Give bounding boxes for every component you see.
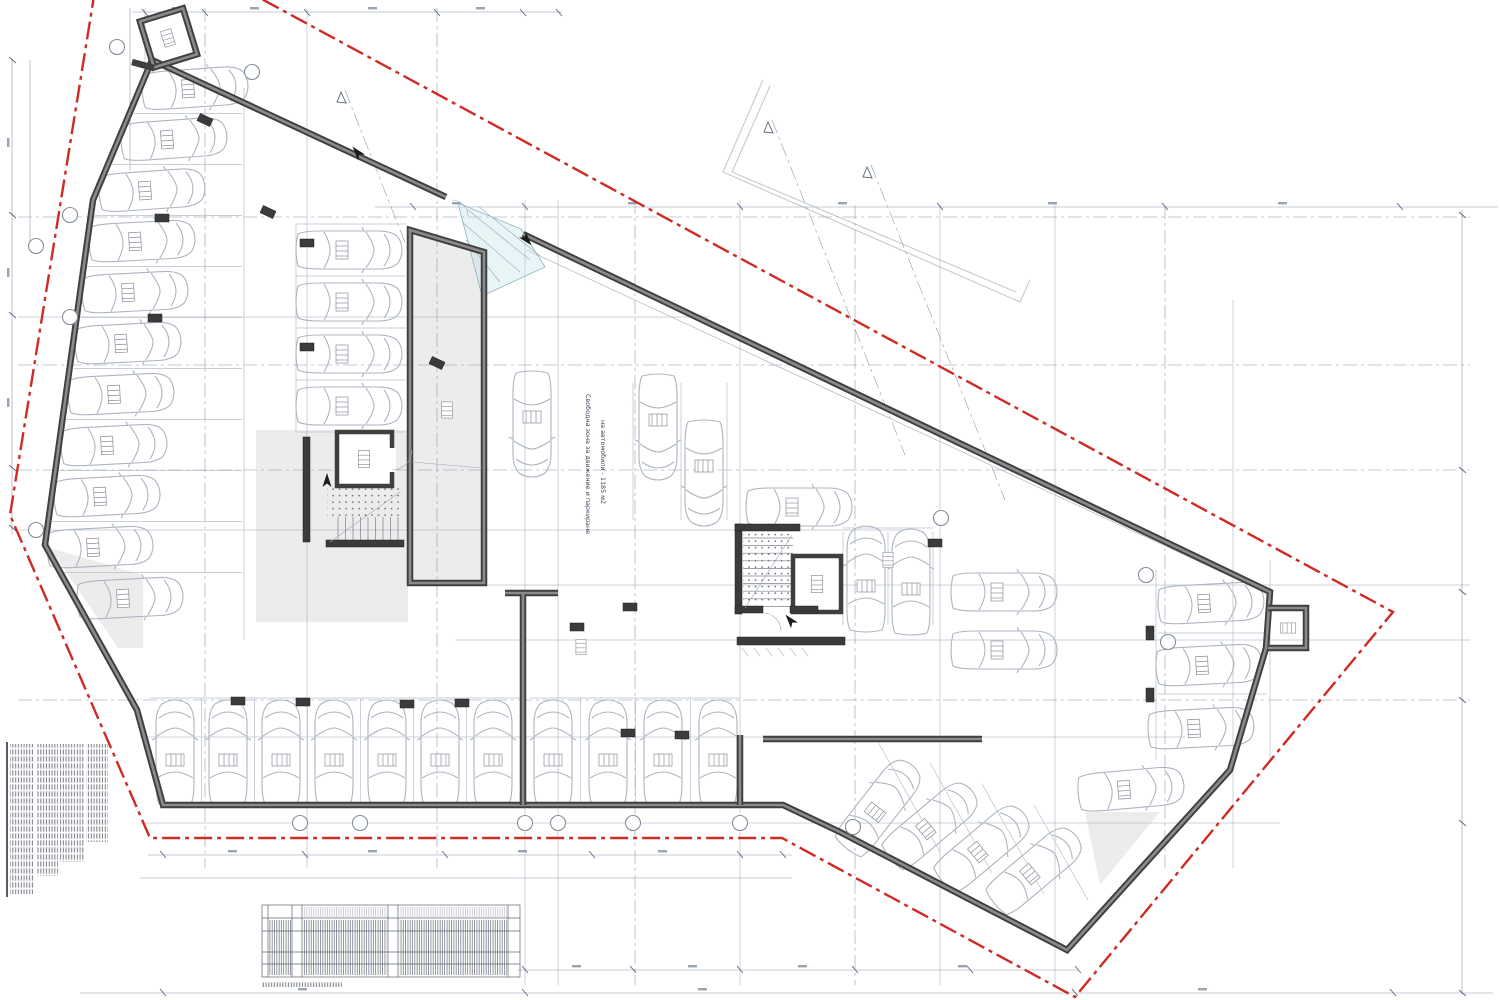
free-zone-label: Свободна зона за движение и паркиране на…: [584, 394, 607, 534]
stair-core-right: [735, 524, 841, 631]
top-left-room: [140, 8, 197, 67]
free-zone-label-line2: на автомобили - 1185 м2: [599, 420, 607, 504]
property-boundary: [10, 0, 1393, 997]
stair-hatch-left: [327, 487, 402, 517]
right-annex-room: [1268, 608, 1306, 648]
floor-plan-sheet: Свободна зона за движение и паркиране на…: [0, 0, 1500, 1000]
parking-floor-plan-drawing: Свободна зона за движение и паркиране на…: [0, 0, 1500, 1000]
parked-cars: [46, 61, 1265, 921]
schedule-table: [262, 905, 520, 987]
shaded-zones: [50, 230, 1160, 885]
notes-text-block: [6, 742, 108, 897]
interior-wall-bar: [737, 637, 845, 645]
parking-bay-lines: [52, 88, 1267, 900]
building-walls: [45, 8, 1306, 950]
free-zone-label-line1: Свободна зона за движение и паркиране: [584, 394, 592, 534]
upper-floor-faint-outline: [723, 80, 1030, 302]
dimension-lines: [7, 7, 1498, 996]
stair-hatch-right: [743, 532, 793, 604]
